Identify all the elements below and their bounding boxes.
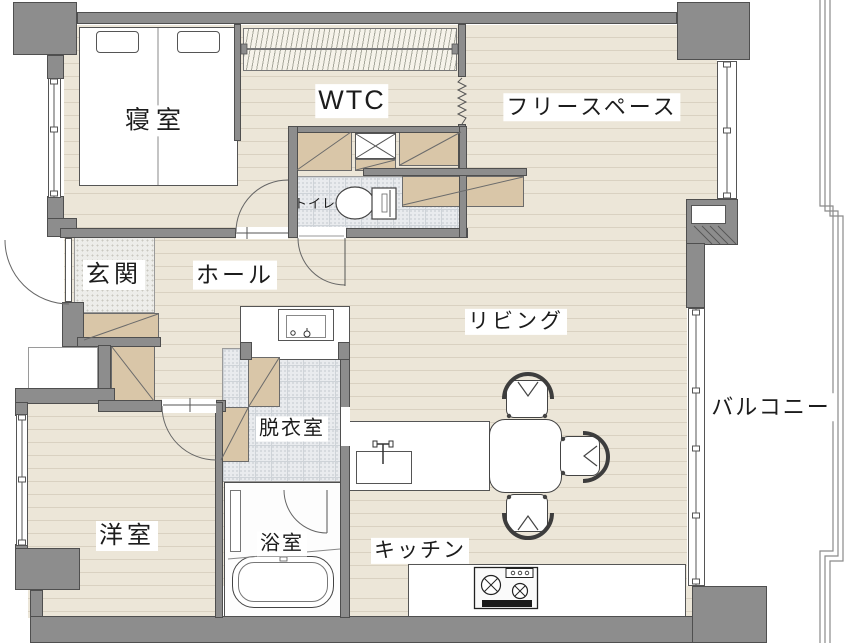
wall	[15, 548, 80, 590]
room-label-entrance: 玄関	[83, 260, 145, 290]
pillar-vent-box	[691, 205, 726, 224]
pillow-icon	[96, 31, 139, 53]
chair-icon	[560, 436, 600, 476]
entrance-door-panel	[65, 238, 72, 302]
wall	[288, 126, 298, 238]
hanger-rod-icon	[243, 28, 457, 71]
kitchen-back-counter	[408, 564, 686, 618]
room-label-bath: 浴室	[257, 532, 307, 557]
closet-icon	[220, 407, 249, 462]
room-label-hall: ホール	[193, 261, 277, 290]
pillow-icon	[177, 31, 220, 53]
bathtub-inner	[238, 562, 328, 602]
wall	[692, 586, 767, 643]
wall	[459, 126, 467, 238]
wall	[77, 12, 677, 24]
hall-closet-icon	[111, 345, 155, 403]
wall	[338, 342, 350, 360]
room-label-free-space: フリースペース	[503, 93, 680, 121]
bedroom-door-opening	[236, 227, 288, 239]
pillar	[686, 243, 705, 308]
wall	[288, 126, 466, 133]
wall	[363, 168, 527, 176]
room-label-western-room: 洋室	[96, 521, 158, 551]
balcony-railing-icon	[820, 0, 843, 643]
western-room-door-opening	[162, 399, 216, 413]
closet-icon	[248, 357, 280, 407]
living-window-icon	[688, 308, 705, 586]
washbasin-bowl-inner	[286, 315, 326, 338]
floor-plan: 寝室 WTC フリースペース トイレ 玄関 ホール リビング 脱衣室 洋室 浴室…	[0, 0, 858, 643]
wall	[215, 402, 223, 618]
wall	[47, 55, 64, 79]
free-space-window-icon	[717, 61, 737, 199]
wall	[77, 337, 161, 347]
room-label-kitchen: キッチン	[371, 538, 469, 564]
bath-ledge	[230, 490, 241, 552]
bedroom-window-icon	[48, 78, 61, 198]
wall	[13, 2, 77, 55]
wall	[30, 616, 702, 643]
wall	[458, 24, 466, 77]
dressing-door-opening	[341, 407, 350, 446]
wall	[240, 342, 252, 360]
chair-icon	[506, 494, 548, 532]
chair-icon	[506, 380, 548, 418]
wall	[60, 228, 236, 238]
wall	[346, 228, 468, 238]
wall	[677, 2, 750, 60]
shelf-box-icon	[355, 133, 396, 159]
closet-icon	[399, 131, 462, 166]
room-label-living: リビング	[465, 309, 567, 335]
room-label-bedroom: 寝室	[122, 105, 190, 136]
wall	[234, 24, 241, 141]
toilet-door-opening	[298, 227, 346, 239]
western-room-window-icon	[16, 414, 28, 546]
dining-table-icon	[489, 419, 562, 493]
room-label-toilet: トイレ	[291, 196, 339, 212]
wall	[98, 400, 162, 412]
room-label-wtc: WTC	[315, 84, 388, 118]
room-label-dressing: 脱衣室	[256, 417, 328, 442]
closet-icon	[296, 131, 352, 171]
kitchen-sink-icon	[356, 451, 412, 484]
wall	[340, 342, 350, 618]
room-label-balcony: バルコニー	[708, 393, 834, 421]
